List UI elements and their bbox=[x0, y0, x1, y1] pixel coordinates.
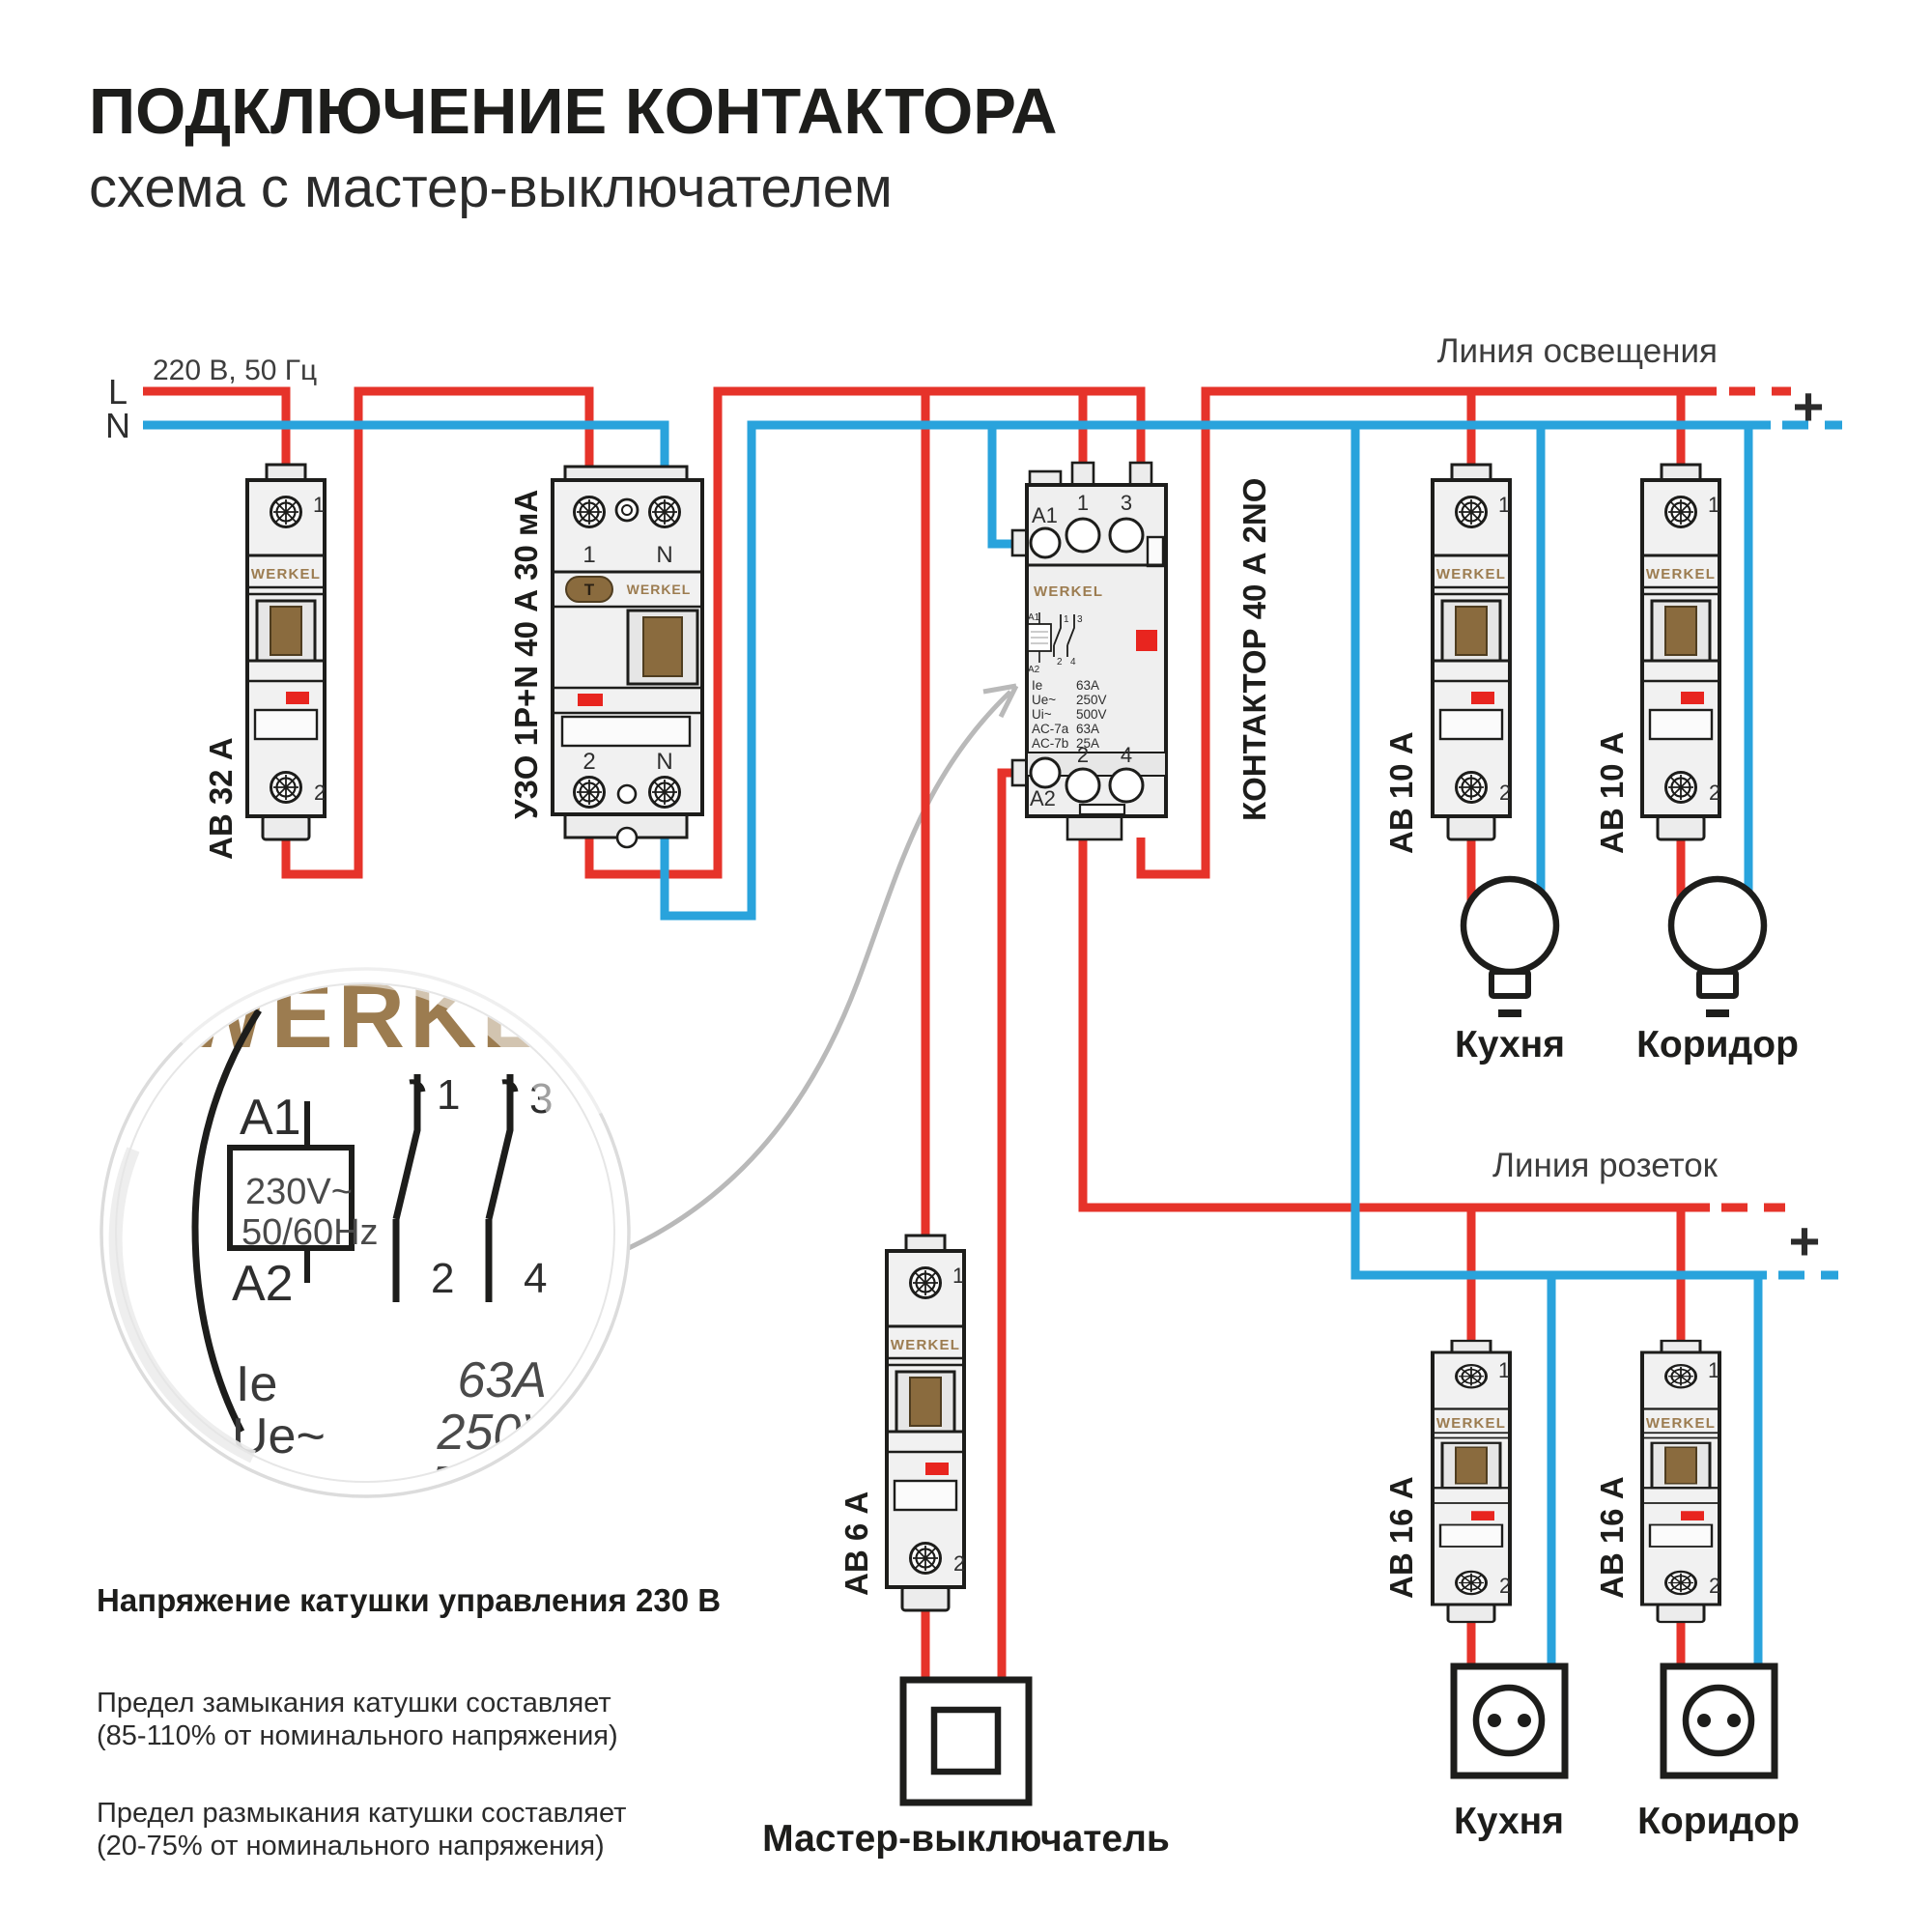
breaker-ab16-kitchen: WERKEL 1 2 АВ 16 А bbox=[1383, 1341, 1511, 1622]
master-switch: Мастер-выключатель bbox=[762, 1680, 1170, 1860]
svg-text:1: 1 bbox=[952, 1264, 964, 1288]
svg-text:WERKEL: WERKEL bbox=[1436, 566, 1506, 582]
svg-text:3: 3 bbox=[1077, 614, 1083, 625]
sockets-plus: + bbox=[1789, 1210, 1821, 1271]
device-label: КОНТАКТОР 40 А 2NO bbox=[1236, 478, 1272, 821]
master-switch-label: Мастер-выключатель bbox=[762, 1818, 1170, 1860]
poster: ПОДКЛЮЧЕНИЕ КОНТАКТОРА схема с мастер-вы… bbox=[0, 0, 1932, 1932]
lighting-line-label: Линия освещения bbox=[1437, 332, 1718, 370]
svg-text:A2: A2 bbox=[1028, 665, 1040, 675]
device-label: АВ 16 А bbox=[1594, 1476, 1630, 1599]
terminal-1: 1 bbox=[313, 493, 325, 517]
svg-text:1: 1 bbox=[1498, 493, 1510, 517]
neutral-label: N bbox=[105, 406, 130, 445]
device-label: АВ 10 А bbox=[1383, 731, 1419, 854]
breaker-ab10-corridor: WERKEL 1 2 АВ 10 А bbox=[1594, 465, 1720, 854]
notes-heading: Напряжение катушки управления 230 В bbox=[97, 1582, 721, 1618]
svg-text:WERKEL: WERKEL bbox=[891, 1337, 960, 1353]
note-line: (85-110% от номинального напряжения) bbox=[97, 1720, 618, 1751]
svg-text:2: 2 bbox=[1709, 781, 1720, 805]
svg-text:WERKEL: WERKEL bbox=[1646, 1415, 1716, 1432]
svg-text:1: 1 bbox=[1708, 1358, 1719, 1382]
uzo-indicator bbox=[578, 694, 603, 706]
a1-terminal bbox=[1031, 528, 1060, 557]
lamp-label: Кухня bbox=[1455, 1024, 1565, 1065]
page-subtitle: схема с мастер-выключателем bbox=[89, 156, 893, 219]
magnifier: WERKEL A1 230V~ 50/60Hz A2 1 3 2 4 Ie 63… bbox=[101, 958, 629, 1517]
brand-label: WERKEL bbox=[1034, 583, 1103, 600]
notes: Напряжение катушки управления 230 В Пред… bbox=[97, 1582, 721, 1861]
svg-text:A1: A1 bbox=[1028, 612, 1040, 623]
a2-label: A2 bbox=[1030, 786, 1056, 810]
t2-label: 2 bbox=[1077, 743, 1089, 767]
svg-text:1: 1 bbox=[1498, 1358, 1510, 1382]
a2-terminal bbox=[1031, 758, 1060, 787]
rcd-uzo: 1 N T WERKEL 2 N УЗО 1P+N 40 А 30 мА bbox=[508, 467, 702, 847]
breaker-ab10-kitchen: WERKEL 1 2 АВ 10 А bbox=[1383, 465, 1511, 854]
mag-a2: A2 bbox=[232, 1256, 294, 1312]
socket-kitchen: Кухня bbox=[1454, 1666, 1565, 1842]
svg-text:Ie: Ie bbox=[1032, 678, 1042, 693]
svg-text:63A: 63A bbox=[1076, 678, 1099, 693]
svg-text:Ie: Ie bbox=[236, 1356, 277, 1412]
svg-text:2: 2 bbox=[1709, 1574, 1720, 1598]
test-button-label: T bbox=[584, 581, 595, 599]
note-line: Предел замыкания катушки составляет bbox=[97, 1688, 611, 1719]
svg-text:2: 2 bbox=[1499, 781, 1511, 805]
svg-text:Ue~: Ue~ bbox=[1032, 693, 1056, 707]
wire-master-to-a2 bbox=[1002, 773, 1014, 1680]
device-label: УЗО 1P+N 40 А 30 мА bbox=[508, 490, 544, 819]
device-label: АВ 16 А bbox=[1383, 1476, 1419, 1599]
uzo-terminal-N-top: N bbox=[656, 542, 672, 568]
sockets-line-label: Линия розеток bbox=[1492, 1147, 1719, 1184]
brand-label: WERKEL bbox=[627, 582, 692, 597]
note-line: (20-75% от номинального напряжения) bbox=[97, 1831, 605, 1861]
breaker-ab32: WERKEL 1 2 АВ 32 А bbox=[203, 465, 326, 860]
lamp-corridor: Коридор bbox=[1636, 879, 1799, 1065]
wire-t4-to-lighting-bus bbox=[1141, 391, 1717, 874]
svg-text:1: 1 bbox=[1064, 614, 1069, 625]
note-line: Предел размыкания катушки составляет bbox=[97, 1798, 626, 1829]
coil-voltage: 230V~ bbox=[245, 1172, 353, 1212]
svg-text:Ui~: Ui~ bbox=[1032, 707, 1052, 722]
wire-N-to-a1 bbox=[992, 425, 1014, 544]
svg-text:63A: 63A bbox=[1076, 722, 1099, 736]
breaker-ab16-corridor: WERKEL 1 2 АВ 16 А bbox=[1594, 1341, 1720, 1622]
socket-icon bbox=[1663, 1666, 1775, 1776]
socket-label: Кухня bbox=[1454, 1801, 1564, 1842]
svg-text:4: 4 bbox=[1070, 657, 1076, 668]
t4-label: 4 bbox=[1121, 743, 1132, 767]
device-label: АВ 32 А bbox=[203, 737, 239, 860]
contactor: A1 1 3 WERKEL A1 A2 1 3 2 4 Ie 63A Ue~ bbox=[1012, 463, 1272, 839]
page-title: ПОДКЛЮЧЕНИЕ КОНТАКТОРА bbox=[89, 75, 1057, 148]
uzo-terminal-1: 1 bbox=[582, 542, 595, 568]
a1-label: A1 bbox=[1032, 503, 1058, 527]
bulb-icon bbox=[1463, 879, 1556, 972]
t3-label: 3 bbox=[1121, 491, 1132, 515]
svg-text:AC-7a: AC-7a bbox=[1032, 722, 1069, 736]
svg-text:1: 1 bbox=[1708, 493, 1719, 517]
svg-text:WERKEL: WERKEL bbox=[1436, 1415, 1506, 1432]
supply-label: 220 В, 50 Гц bbox=[153, 355, 317, 386]
brand-label: WERKEL bbox=[251, 566, 321, 582]
svg-text:1: 1 bbox=[437, 1071, 460, 1119]
device-label: АВ 10 А bbox=[1594, 731, 1630, 854]
svg-text:4: 4 bbox=[524, 1255, 547, 1302]
svg-text:WERKEL: WERKEL bbox=[1646, 566, 1716, 582]
device-label: АВ 6 А bbox=[838, 1492, 874, 1596]
uzo-terminal-2: 2 bbox=[582, 749, 595, 775]
svg-text:2: 2 bbox=[953, 1551, 965, 1576]
coil-frequency: 50/60Hz bbox=[241, 1212, 379, 1253]
lamp-label: Коридор bbox=[1636, 1024, 1799, 1065]
svg-text:63A: 63A bbox=[457, 1352, 547, 1408]
lamp-kitchen: Кухня bbox=[1455, 879, 1565, 1065]
breaker-ab6: WERKEL 1 2 АВ 6 А bbox=[838, 1236, 965, 1610]
t1-label: 1 bbox=[1077, 491, 1089, 515]
svg-text:2: 2 bbox=[1499, 1574, 1511, 1598]
terminal-2: 2 bbox=[314, 781, 326, 805]
uzo-terminal-N-bottom: N bbox=[656, 749, 672, 775]
svg-text:250V: 250V bbox=[1076, 693, 1107, 707]
socket-corridor: Коридор bbox=[1637, 1666, 1800, 1842]
socket-icon bbox=[1454, 1666, 1565, 1776]
socket-label: Коридор bbox=[1637, 1801, 1800, 1842]
bulb-icon bbox=[1671, 879, 1764, 972]
svg-text:500V: 500V bbox=[1076, 707, 1107, 722]
svg-text:2: 2 bbox=[431, 1255, 454, 1302]
lighting-plus: + bbox=[1793, 376, 1825, 437]
mag-a1: A1 bbox=[240, 1090, 301, 1146]
contactor-indicator bbox=[1136, 630, 1157, 651]
svg-text:AC-7b: AC-7b bbox=[1032, 736, 1068, 751]
svg-text:2: 2 bbox=[1057, 657, 1063, 668]
wiring-diagram: ПОДКЛЮЧЕНИЕ КОНТАКТОРА схема с мастер-вы… bbox=[0, 0, 1932, 1932]
